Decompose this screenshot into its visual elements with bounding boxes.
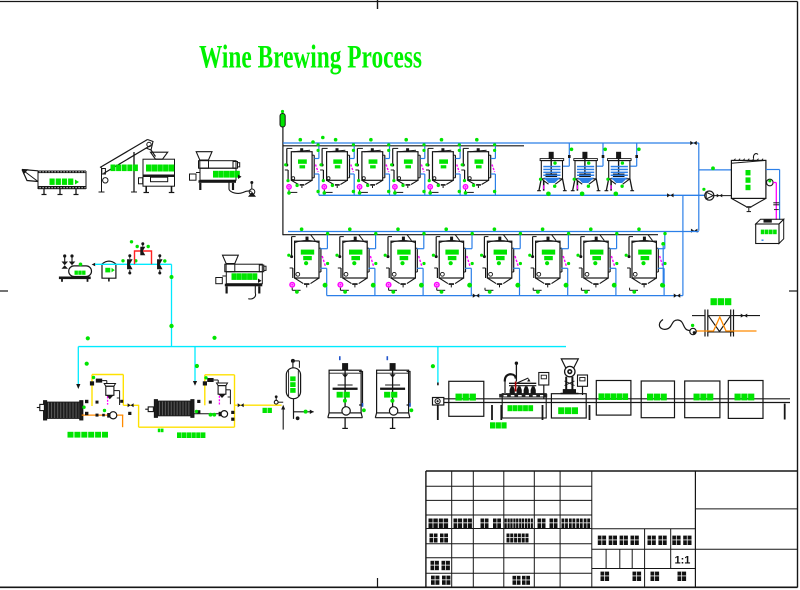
svg-text:Wine Brewing Process: Wine Brewing Process <box>199 40 422 76</box>
svg-text:1:1: 1:1 <box>675 555 691 567</box>
